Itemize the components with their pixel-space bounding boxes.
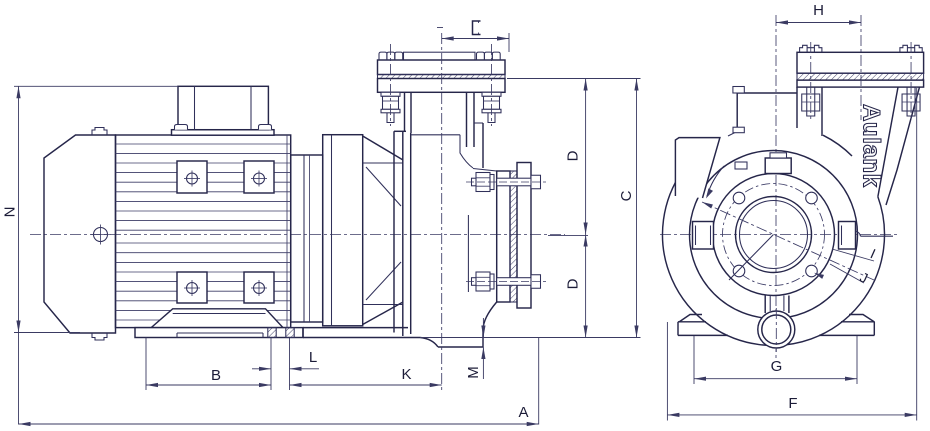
svg-text:A: A: [518, 404, 528, 421]
svg-text:N: N: [2, 207, 19, 218]
svg-text:D: D: [565, 278, 582, 289]
svg-text:H: H: [813, 2, 824, 19]
svg-text:G: G: [771, 358, 783, 375]
svg-text:M: M: [465, 366, 482, 379]
svg-text:K: K: [401, 366, 411, 383]
svg-text:L: L: [309, 349, 317, 366]
svg-text:C: C: [618, 190, 635, 201]
svg-text:Aulank: Aulank: [858, 104, 885, 188]
svg-text:D: D: [565, 150, 582, 161]
svg-text:B: B: [211, 367, 221, 384]
svg-text:F: F: [788, 395, 797, 412]
